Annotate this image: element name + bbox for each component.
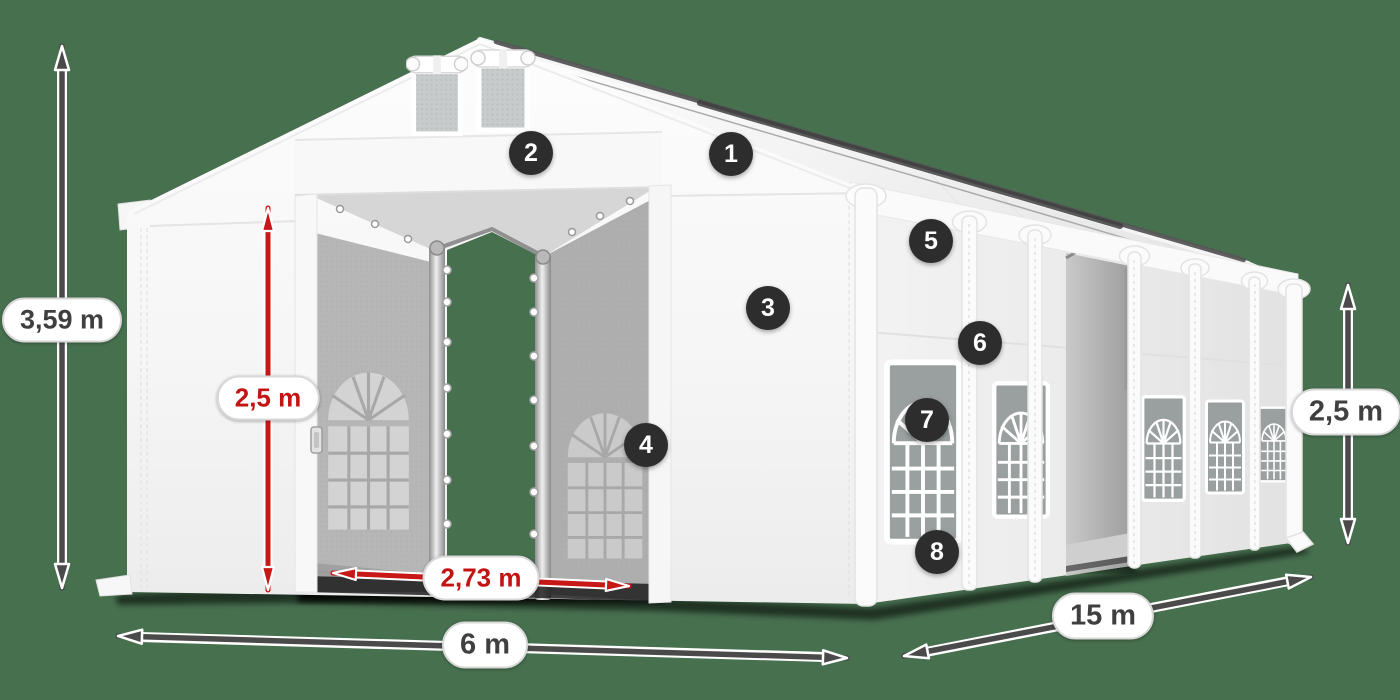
side-window-1 xyxy=(887,362,959,541)
side-wall-height-label: 2,5 m xyxy=(1291,389,1400,436)
side-window-5 xyxy=(1259,408,1289,482)
callout-badge-7[interactable]: 7 xyxy=(905,398,949,442)
total-height-label: 3,59 m xyxy=(2,298,122,343)
entrance-header xyxy=(295,132,662,195)
callout-badge-5[interactable]: 5 xyxy=(909,219,953,263)
vent-window-right xyxy=(471,49,535,130)
callout-badge-3[interactable]: 3 xyxy=(746,286,790,330)
entrance-width-label: 2,73 m xyxy=(423,556,540,601)
side-window-3 xyxy=(1143,397,1185,501)
side-door-opening xyxy=(1066,242,1130,576)
entrance-height-label: 2,5 m xyxy=(217,376,320,421)
callout-badge-2[interactable]: 2 xyxy=(509,131,553,175)
callout-badge-8[interactable]: 8 xyxy=(915,530,959,574)
callout-badge-6[interactable]: 6 xyxy=(958,321,1002,365)
front-width-label: 6 m xyxy=(442,622,528,669)
tent-drawing xyxy=(0,0,1400,700)
right-door-panel xyxy=(541,196,658,601)
side-length-label: 15 m xyxy=(1052,593,1154,640)
callout-badge-1[interactable]: 1 xyxy=(709,132,753,176)
door-handle[interactable] xyxy=(311,427,322,453)
front-door-opening xyxy=(303,186,658,601)
side-window-4 xyxy=(1207,401,1244,493)
tent-dimensions-illustration: 1 2 3 4 5 6 7 8 3,59 m 2,5 m 2,73 m 6 m … xyxy=(0,0,1400,700)
open-door-gap xyxy=(447,232,539,590)
vent-window-left xyxy=(406,55,468,133)
callout-badge-4[interactable]: 4 xyxy=(624,423,668,467)
left-door-panel xyxy=(303,230,431,592)
